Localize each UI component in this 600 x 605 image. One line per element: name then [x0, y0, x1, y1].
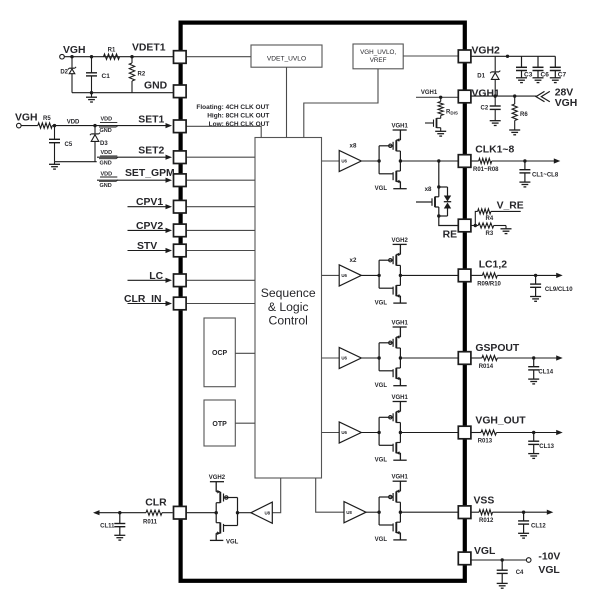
svg-text:Control: Control: [269, 313, 308, 327]
svg-text:-10V: -10V: [538, 552, 560, 563]
svg-text:R2: R2: [138, 72, 146, 78]
svg-text:CPV1: CPV1: [136, 197, 163, 208]
svg-text:x2: x2: [350, 257, 357, 264]
svg-text:D2: D2: [60, 70, 68, 76]
svg-text:VDET_UVLO: VDET_UVLO: [267, 55, 306, 62]
svg-text:R012: R012: [479, 518, 494, 524]
svg-text:C1: C1: [102, 73, 111, 80]
svg-text:CL12: CL12: [531, 524, 546, 530]
svg-text:VGH_UVLO,: VGH_UVLO,: [360, 49, 396, 56]
svg-text:VGH: VGH: [63, 45, 86, 56]
svg-text:LC1,2: LC1,2: [479, 260, 508, 271]
svg-text:GND: GND: [100, 160, 112, 166]
svg-text:CLR_IN: CLR_IN: [124, 294, 162, 305]
svg-text:VGH_OUT: VGH_OUT: [475, 415, 526, 426]
svg-text:U6: U6: [341, 273, 347, 278]
svg-text:RDIS: RDIS: [446, 110, 458, 116]
svg-text:U6: U6: [341, 430, 347, 435]
svg-text:VGL: VGL: [375, 458, 388, 464]
svg-text:LC: LC: [149, 271, 163, 282]
svg-text:CL9/CL10: CL9/CL10: [545, 287, 573, 293]
svg-text:R09/R10: R09/R10: [477, 281, 501, 287]
svg-text:SET_GPM: SET_GPM: [125, 168, 175, 179]
svg-text:C4: C4: [516, 570, 524, 576]
svg-text:U6: U6: [341, 159, 347, 164]
svg-text:VGH2: VGH2: [472, 46, 501, 57]
svg-text:C2: C2: [481, 106, 489, 112]
svg-text:VGL: VGL: [538, 565, 560, 576]
svg-text:C3: C3: [524, 72, 533, 79]
svg-text:VGH2: VGH2: [392, 238, 409, 244]
svg-text:R4: R4: [486, 216, 494, 222]
svg-text:VGH1: VGH1: [421, 90, 438, 96]
svg-text:Sequence: Sequence: [261, 286, 316, 300]
svg-text:x8: x8: [350, 143, 357, 150]
svg-text:R014: R014: [479, 364, 494, 370]
svg-text:D3: D3: [100, 141, 108, 147]
svg-text:R01~R08: R01~R08: [473, 167, 499, 173]
svg-text:SET2: SET2: [138, 145, 164, 156]
svg-text:U8: U8: [264, 510, 270, 515]
svg-text:CL13: CL13: [539, 444, 554, 450]
svg-text:SET1: SET1: [138, 115, 164, 126]
svg-text:VGH: VGH: [15, 113, 38, 124]
svg-text:C7: C7: [558, 72, 567, 79]
svg-text:RE: RE: [443, 230, 458, 241]
svg-text:VGH1: VGH1: [392, 124, 409, 130]
svg-text:VSS: VSS: [474, 495, 495, 506]
svg-text:VGL: VGL: [375, 537, 388, 543]
svg-text:CL11: CL11: [100, 523, 115, 529]
svg-text:GSPOUT: GSPOUT: [475, 343, 520, 354]
svg-text:Floating: 4CH CLK OUT: Floating: 4CH CLK OUT: [196, 104, 269, 111]
svg-text:VGL: VGL: [375, 383, 388, 389]
svg-text:CPV2: CPV2: [136, 221, 163, 232]
svg-text:V_RE: V_RE: [497, 201, 524, 212]
svg-text:GND: GND: [144, 81, 168, 92]
svg-text:VGL: VGL: [474, 546, 496, 557]
svg-text:U6: U6: [341, 356, 347, 361]
svg-text:VGH1: VGH1: [392, 395, 409, 401]
svg-text:R5: R5: [43, 116, 51, 122]
svg-text:C5: C5: [65, 142, 73, 148]
svg-text:VGL: VGL: [226, 540, 239, 546]
svg-text:VDD: VDD: [101, 150, 113, 156]
svg-text:OTP: OTP: [212, 421, 227, 428]
svg-text:STV: STV: [137, 241, 157, 252]
svg-text:& Logic: & Logic: [268, 300, 309, 314]
svg-text:x8: x8: [425, 186, 432, 193]
svg-text:VGL: VGL: [375, 186, 388, 192]
svg-text:VDD: VDD: [67, 119, 80, 125]
svg-text:OCP: OCP: [212, 350, 228, 357]
svg-text:R011: R011: [143, 520, 158, 526]
svg-text:CL14: CL14: [538, 370, 553, 376]
svg-text:D1: D1: [477, 74, 485, 80]
svg-text:R1: R1: [108, 47, 116, 53]
svg-text:VDET1: VDET1: [132, 42, 166, 53]
svg-text:High: 8CH CLK OUT: High: 8CH CLK OUT: [207, 113, 269, 120]
svg-text:CLK1~8: CLK1~8: [475, 145, 514, 156]
svg-text:VGH: VGH: [555, 98, 578, 109]
svg-text:VGH1: VGH1: [392, 321, 409, 327]
svg-text:U8: U8: [346, 510, 352, 515]
svg-text:GND: GND: [100, 183, 112, 189]
svg-text:R013: R013: [478, 439, 493, 445]
svg-text:R6: R6: [520, 112, 528, 118]
svg-text:VDD: VDD: [101, 171, 113, 177]
svg-text:CLR: CLR: [145, 498, 167, 509]
svg-text:VGH1: VGH1: [392, 475, 409, 481]
svg-text:R3: R3: [486, 231, 494, 237]
svg-text:VREF: VREF: [370, 57, 387, 64]
svg-text:28V: 28V: [555, 87, 574, 98]
svg-text:VDD: VDD: [101, 117, 113, 123]
svg-text:CL1~CL8: CL1~CL8: [532, 173, 559, 179]
svg-text:C6: C6: [541, 72, 550, 79]
svg-text:GND: GND: [100, 128, 112, 134]
svg-text:VGH2: VGH2: [209, 475, 226, 481]
svg-text:VGL: VGL: [375, 300, 388, 306]
